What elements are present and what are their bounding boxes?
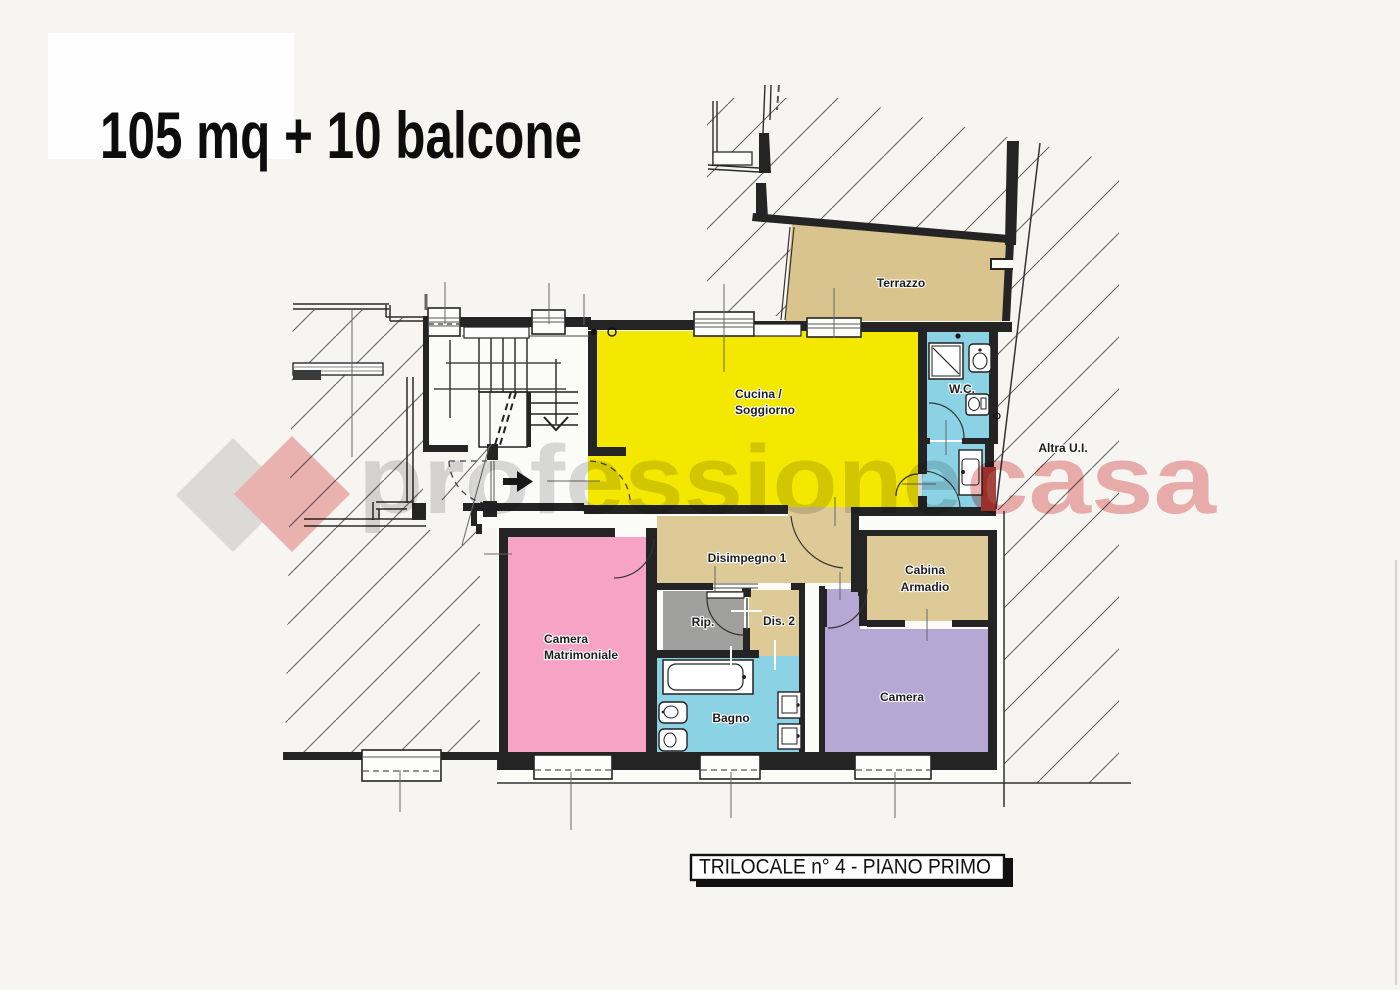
svg-text:Rip.: Rip.	[692, 615, 715, 629]
svg-text:Camera: Camera	[880, 690, 924, 704]
svg-text:Terrazzo: Terrazzo	[877, 276, 925, 290]
svg-text:casa: casa	[966, 425, 1217, 534]
svg-text:Cabina: Cabina	[905, 563, 945, 577]
svg-text:Matrimoniale: Matrimoniale	[544, 648, 618, 662]
svg-text:Cucina /: Cucina /	[735, 387, 782, 401]
svg-text:Armadio: Armadio	[901, 580, 950, 594]
svg-text:Dis. 2: Dis. 2	[763, 614, 795, 628]
svg-text:Soggiorno: Soggiorno	[735, 403, 795, 417]
svg-text:Bagno: Bagno	[712, 711, 749, 725]
svg-text:Disimpegno 1: Disimpegno 1	[708, 551, 787, 565]
svg-text:Camera: Camera	[544, 632, 588, 646]
svg-text:TRILOCALE n° 4 - PIANO PRIMO: TRILOCALE n° 4 - PIANO PRIMO	[699, 856, 991, 879]
svg-text:professione: professione	[358, 425, 962, 534]
svg-text:105 mq + 10 balcone: 105 mq + 10 balcone	[100, 98, 582, 172]
